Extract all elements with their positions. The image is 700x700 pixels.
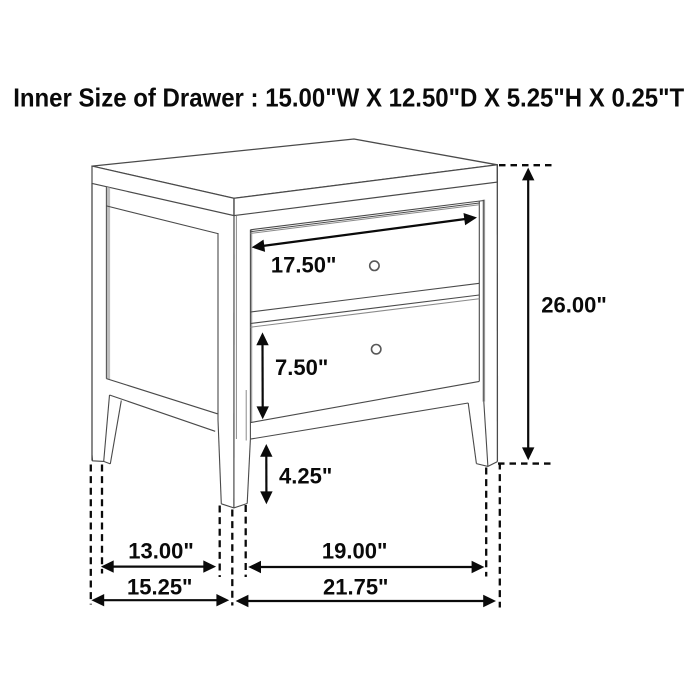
svg-text:4.25": 4.25" [279, 464, 332, 489]
svg-text:7.50": 7.50" [275, 355, 328, 380]
svg-text:Inner Size of Drawer : 15.00"W: Inner Size of Drawer : 15.00"W X 12.50"D… [13, 85, 684, 113]
svg-text:19.00": 19.00" [322, 539, 387, 564]
svg-text:13.00": 13.00" [128, 539, 193, 564]
svg-text:17.50": 17.50" [271, 253, 336, 278]
svg-text:26.00": 26.00" [541, 292, 606, 317]
svg-text:21.75": 21.75" [323, 575, 388, 600]
svg-text:15.25": 15.25" [127, 575, 192, 600]
